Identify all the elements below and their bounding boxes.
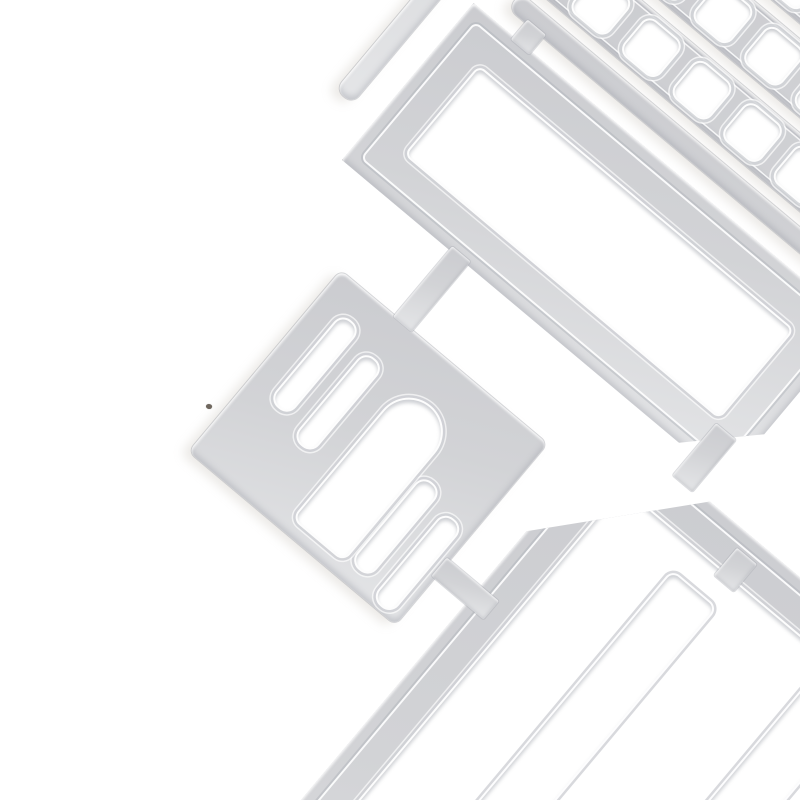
window-hole — [641, 0, 703, 2]
window-hole — [671, 59, 733, 121]
photo-backdrop: Close-up photo of a silver metal cutting… — [0, 0, 800, 800]
window-hole — [793, 68, 800, 130]
window-hole — [722, 102, 784, 164]
window-hole — [570, 0, 632, 36]
die-sheet — [0, 0, 800, 800]
window-hole — [772, 144, 800, 206]
connector-tab-frame-to-facade — [393, 246, 471, 332]
window-hole — [620, 17, 682, 79]
window-hole — [692, 0, 754, 45]
window-hole — [743, 25, 800, 87]
window-hole — [764, 0, 800, 11]
